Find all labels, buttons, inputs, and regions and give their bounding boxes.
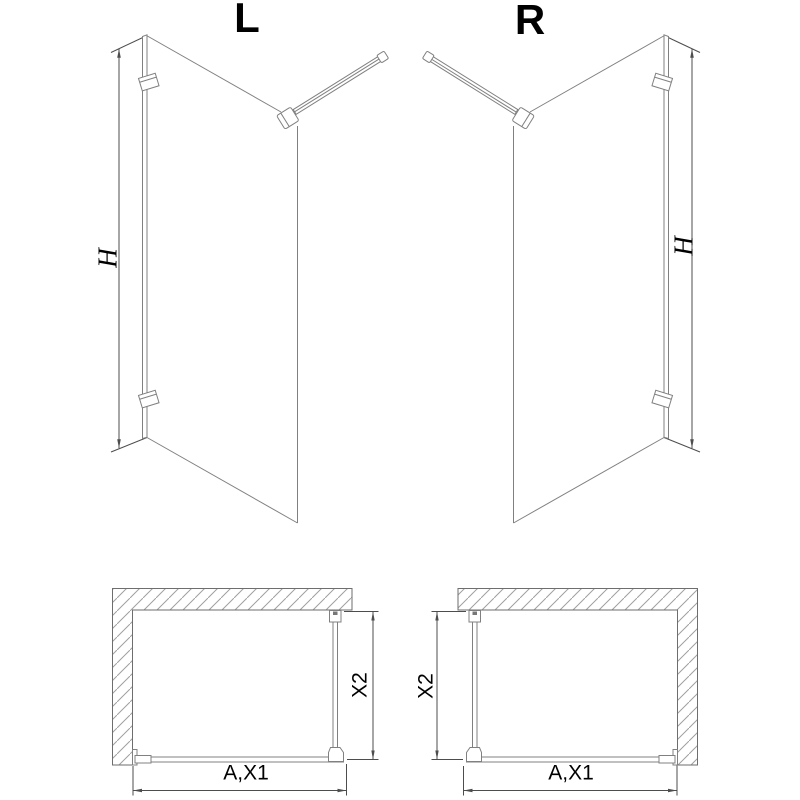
variant-label-right: R [515,0,545,41]
view-3d-left [111,35,389,523]
wall-bracket-bottom [138,390,159,408]
shower-panel-technical-drawing: L R H H X2 X2 A,X1 A,X1 [0,0,800,800]
x2-dim-label-left: X2 [350,672,371,698]
arrow-down-icon [435,751,438,760]
wall-bracket-plan [659,750,678,766]
variant-label-left: L [234,0,260,39]
bar-wall-fitting [469,611,481,623]
glass-panel-left [147,36,298,524]
arrow-left-icon [133,789,142,792]
wall-hatched [458,589,698,766]
height-dim-label-right: H [671,236,698,256]
ax1-dim-label-left: A,X1 [223,763,269,784]
x2-dim-label-right: X2 [416,673,437,699]
diagram-canvas [0,0,800,800]
arrow-down-icon [117,439,121,448]
bar-clamp-plan [467,748,482,762]
arrow-left-icon [464,789,473,792]
arrow-right-icon [668,789,677,792]
bar-wall-fitting [330,611,342,623]
arrow-down-icon [371,751,374,760]
wall-bracket-top [652,73,673,91]
dim-height-left [111,36,147,452]
arrow-up-icon [117,49,121,58]
arrow-down-icon [690,439,694,448]
height-dim-label-left: H [95,248,122,268]
wall-bracket-bottom [652,390,673,408]
bar-clamp-plan [329,748,344,762]
glass-panel-right [514,36,665,524]
support-bar-left [292,51,388,116]
arrow-right-icon [338,789,347,792]
support-bar-plan [333,619,338,752]
arrow-up-icon [435,612,438,621]
ax1-dim-label-right: A,X1 [548,763,594,784]
wall-profile-left [143,35,148,439]
support-bar-plan [473,619,478,752]
wall-hatched [113,589,353,766]
view-3d-right [422,35,700,523]
support-bar-right [422,51,518,116]
arrow-up-icon [371,612,374,621]
arrow-up-icon [690,49,694,58]
wall-bracket-top [138,73,159,91]
wall-bracket-plan [133,750,152,766]
